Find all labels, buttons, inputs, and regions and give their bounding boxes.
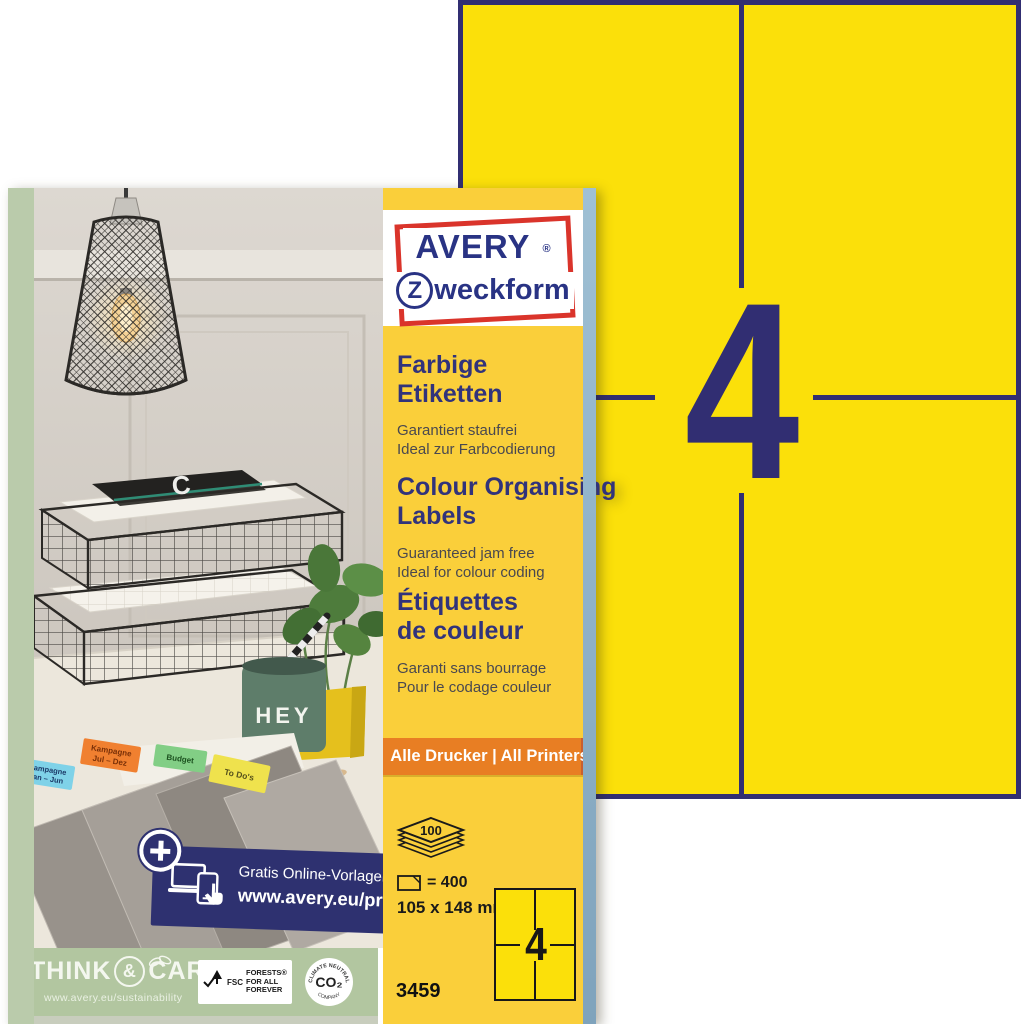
desk-photo: C HE: [34, 188, 383, 948]
online-templates-banner: Gratis Online-Vorlagen: www.avery.eu/pri…: [151, 845, 383, 934]
sheet-count: 100: [420, 823, 442, 838]
think-and-care-logo: THINK & CARE: [30, 956, 223, 987]
box-side-blue: [583, 188, 596, 1024]
subtitle-german-line1: Garantiert staufrei: [397, 421, 555, 440]
sustainability-url: www.avery.eu/sustainability: [44, 992, 182, 1004]
sheet-label-count: 4: [685, 266, 800, 518]
brand-logo: AVERY® Z weckform: [383, 210, 583, 326]
product-number: 3459: [396, 980, 441, 1003]
title-german-line2: Etiketten: [397, 380, 503, 409]
label-equation-row: = 400: [397, 874, 467, 892]
sheet-cut-line-vertical-bottom: [739, 493, 744, 794]
leaf-icon: [148, 955, 172, 967]
title-german: Farbige Etiketten: [397, 351, 503, 409]
co2-neutral-badge: CLIMATE NEUTRAL COMPANY CO₂: [304, 957, 354, 1007]
registered-mark: ®: [536, 243, 556, 255]
fsc-label: FSC: [227, 978, 243, 987]
sheet-stack-icon: 100: [395, 814, 467, 870]
subtitle-english: Guaranteed jam free Ideal for colour cod…: [397, 544, 545, 582]
subtitle-french-line2: Pour le codage couleur: [397, 678, 551, 697]
think-text: THINK: [30, 957, 111, 986]
subtitle-german-line2: Ideal zur Farbcodierung: [397, 440, 555, 459]
sustainability-strip: THINK & CARE www.avery.eu/sustainability…: [8, 948, 378, 1016]
devices-icon: [167, 860, 233, 914]
zweckform-wordmark: weckform: [434, 274, 569, 307]
online-banner-url: www.avery.eu/print: [237, 884, 383, 912]
subtitle-english-line1: Guaranteed jam free: [397, 544, 545, 563]
fsc-tree-icon: [202, 966, 224, 998]
online-banner-text: Gratis Online-Vorlagen: www.avery.eu/pri…: [237, 863, 383, 912]
desk-photo-svg: C HE: [34, 188, 383, 948]
zweckform-z-circle: Z: [396, 272, 433, 309]
mug-opening: [242, 657, 326, 675]
box-side-green: [8, 188, 34, 1024]
title-french: Étiquettes de couleur: [397, 588, 523, 646]
subtitle-french: Garanti sans bourrage Pour le codage cou…: [397, 659, 551, 697]
pot-shade: [350, 686, 366, 758]
sheet-cut-line-horizontal-right: [813, 395, 1016, 400]
product-box: C HE: [8, 188, 596, 1024]
brand-zweckform: Z weckform: [383, 272, 583, 309]
mini-sheet-diagram: 4: [494, 888, 576, 1001]
all-printers-banner: Alle Drucker | All Printers: [383, 738, 596, 775]
avery-wordmark: AVERY: [409, 228, 536, 265]
subtitle-french-line1: Garanti sans bourrage: [397, 659, 551, 678]
mini-cut-line: [496, 944, 520, 946]
mini-label-count: 4: [525, 921, 547, 967]
label-dimensions: 105 x 148 mm: [397, 898, 508, 918]
title-german-line1: Farbige: [397, 351, 503, 380]
fsc-certification: FSC FORESTS® FOR ALL FOREVER: [198, 960, 292, 1004]
fsc-slogan-line3: FOREVER: [246, 986, 287, 995]
subtitle-english-line2: Ideal for colour coding: [397, 563, 545, 582]
online-banner-line1: Gratis Online-Vorlagen:: [238, 863, 383, 886]
title-french-line2: de couleur: [397, 617, 523, 646]
fsc-slogan: FORESTS® FOR ALL FOREVER: [246, 969, 287, 995]
subtitle-german: Garantiert staufrei Ideal zur Farbcodier…: [397, 421, 555, 459]
mini-cut-line: [550, 944, 574, 946]
info-panel: AVERY® Z weckform Farbige Etiketten Gara…: [383, 188, 583, 1024]
mug-text: HEY: [255, 703, 312, 728]
sheet-cut-line-vertical-top: [739, 5, 744, 288]
ampersand-circle: &: [114, 956, 145, 987]
label-icon: [397, 875, 421, 891]
box-bottom-edge: [8, 1016, 378, 1024]
brand-avery: AVERY®: [383, 228, 583, 266]
co2-text: CO₂: [315, 974, 342, 990]
title-french-line1: Étiquettes: [397, 588, 523, 617]
label-equation: = 400: [427, 874, 467, 892]
